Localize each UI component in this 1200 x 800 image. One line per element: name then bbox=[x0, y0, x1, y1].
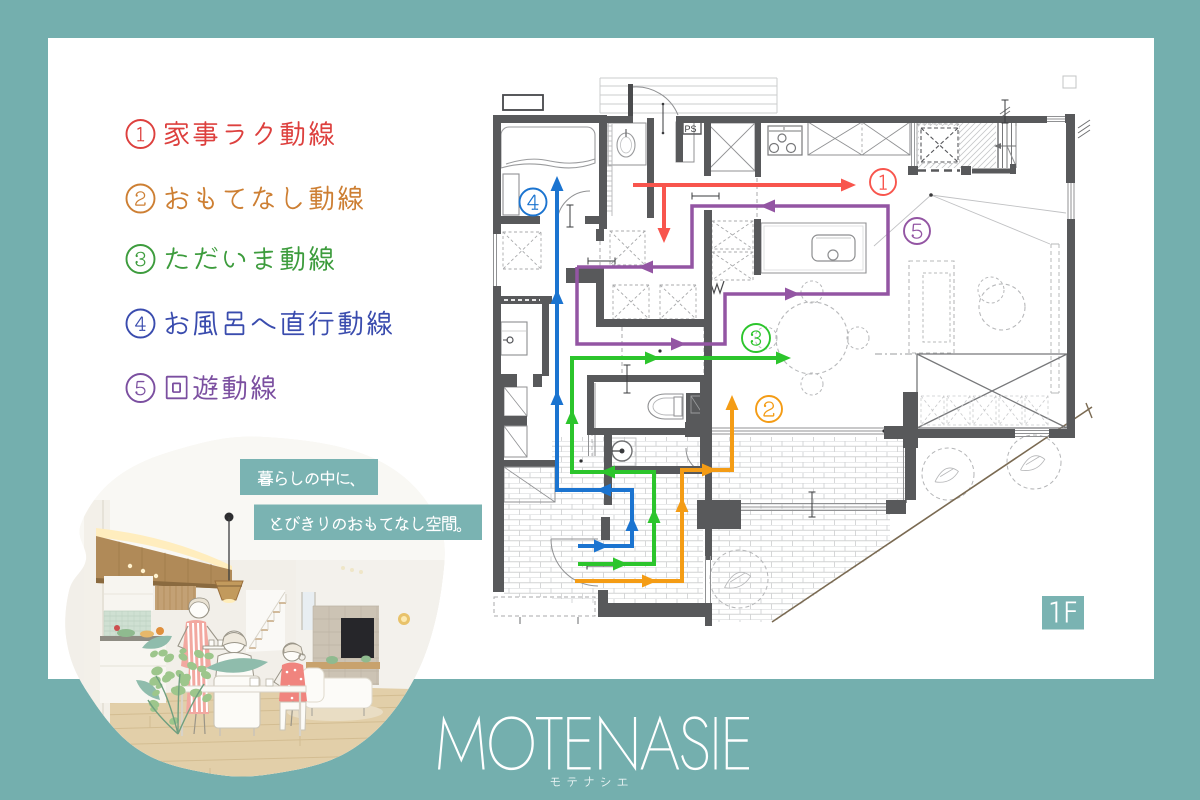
svg-text:PS: PS bbox=[685, 124, 697, 134]
